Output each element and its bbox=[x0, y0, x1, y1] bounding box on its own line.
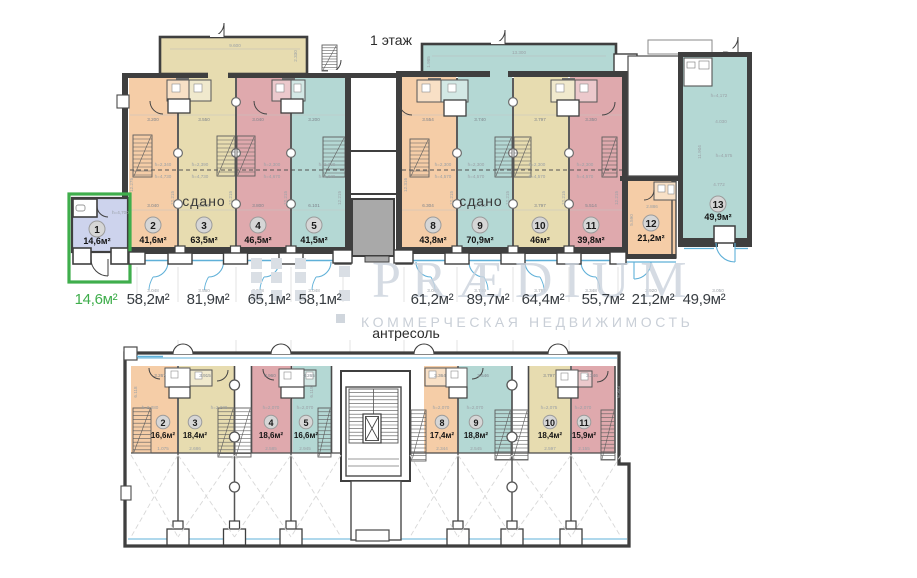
svg-text:3.797: 3.797 bbox=[543, 373, 555, 378]
svg-text:3.364: 3.364 bbox=[434, 373, 446, 378]
svg-text:58,2м²: 58,2м² bbox=[127, 291, 170, 308]
svg-text:18,4м²: 18,4м² bbox=[538, 431, 562, 440]
svg-text:12.215: 12.215 bbox=[283, 191, 288, 205]
svg-text:6.303: 6.303 bbox=[616, 386, 621, 398]
svg-text:46,5м²: 46,5м² bbox=[244, 235, 271, 245]
svg-text:антресоль: антресоль bbox=[372, 325, 440, 341]
svg-text:3.265: 3.265 bbox=[303, 373, 315, 378]
svg-text:12.316: 12.316 bbox=[403, 178, 408, 192]
svg-text:3.350: 3.350 bbox=[585, 117, 597, 122]
svg-text:1.985: 1.985 bbox=[426, 56, 431, 68]
svg-text:15,9м²: 15,9м² bbox=[572, 431, 596, 440]
svg-text:h=2,070: h=2,070 bbox=[263, 405, 280, 410]
svg-text:18,4м²: 18,4м² bbox=[183, 431, 207, 440]
svg-text:21,2м²: 21,2м² bbox=[637, 233, 664, 243]
svg-text:h=2,070: h=2,070 bbox=[433, 405, 450, 410]
svg-text:h=4,730: h=4,730 bbox=[192, 174, 209, 179]
svg-text:16,6м²: 16,6м² bbox=[294, 431, 318, 440]
svg-text:h=4,670: h=4,670 bbox=[319, 174, 336, 179]
svg-text:10: 10 bbox=[534, 221, 546, 232]
svg-text:3.800: 3.800 bbox=[252, 203, 264, 208]
svg-text:h=2,070: h=2,070 bbox=[575, 405, 592, 410]
svg-text:h=2,070: h=2,070 bbox=[297, 405, 314, 410]
svg-text:11.904: 11.904 bbox=[697, 145, 702, 159]
svg-text:81,9м²: 81,9м² bbox=[187, 291, 230, 308]
svg-text:h=2,300: h=2,300 bbox=[468, 162, 485, 167]
svg-text:h=2,300: h=2,300 bbox=[319, 162, 336, 167]
svg-text:h=2,070: h=2,070 bbox=[467, 405, 484, 410]
svg-text:21,2м²: 21,2м² bbox=[632, 291, 675, 308]
svg-text:h=4,570: h=4,570 bbox=[529, 174, 546, 179]
svg-text:6.101: 6.101 bbox=[308, 203, 320, 208]
svg-text:3.040: 3.040 bbox=[252, 117, 264, 122]
svg-text:4: 4 bbox=[255, 221, 261, 232]
svg-text:12.215: 12.215 bbox=[337, 191, 342, 205]
svg-text:10: 10 bbox=[545, 418, 555, 428]
svg-text:12: 12 bbox=[645, 219, 657, 230]
svg-text:14,6м²: 14,6м² bbox=[83, 236, 110, 246]
svg-text:h=2,300: h=2,300 bbox=[577, 162, 594, 167]
svg-text:2.585: 2.585 bbox=[265, 446, 277, 451]
svg-text:3.200: 3.200 bbox=[308, 117, 320, 122]
svg-text:3.797: 3.797 bbox=[534, 117, 546, 122]
svg-text:8: 8 bbox=[439, 418, 444, 428]
svg-text:сдано: сдано bbox=[182, 193, 225, 209]
svg-text:5: 5 bbox=[303, 418, 308, 428]
svg-text:49,9м²: 49,9м² bbox=[704, 212, 731, 222]
svg-text:h=4,575: h=4,575 bbox=[716, 153, 733, 158]
svg-text:h=2,340: h=2,340 bbox=[155, 162, 172, 167]
svg-text:9: 9 bbox=[473, 418, 478, 428]
svg-text:2.945: 2.945 bbox=[299, 446, 311, 451]
svg-text:12.215: 12.215 bbox=[449, 191, 454, 205]
svg-text:сдано: сдано bbox=[459, 193, 502, 209]
svg-text:12.215: 12.215 bbox=[561, 191, 566, 205]
svg-text:13: 13 bbox=[712, 200, 724, 211]
svg-text:2.686: 2.686 bbox=[189, 446, 201, 451]
svg-text:55,7м²: 55,7м² bbox=[582, 291, 625, 308]
svg-text:8: 8 bbox=[430, 221, 436, 232]
svg-text:13.300: 13.300 bbox=[512, 50, 526, 55]
svg-text:3.797: 3.797 bbox=[534, 203, 546, 208]
svg-text:41,5м²: 41,5м² bbox=[300, 235, 327, 245]
svg-text:h=2,300: h=2,300 bbox=[264, 162, 281, 167]
svg-text:9: 9 bbox=[477, 221, 483, 232]
svg-text:3: 3 bbox=[192, 418, 197, 428]
svg-text:h=2,270: h=2,270 bbox=[211, 405, 228, 410]
svg-text:43,8м²: 43,8м² bbox=[419, 235, 446, 245]
svg-text:3.960: 3.960 bbox=[264, 373, 276, 378]
svg-text:2.597: 2.597 bbox=[544, 446, 556, 451]
svg-text:4: 4 bbox=[268, 418, 273, 428]
svg-text:2.545: 2.545 bbox=[470, 446, 482, 451]
svg-text:h=4,570: h=4,570 bbox=[468, 174, 485, 179]
svg-text:16,6м²: 16,6м² bbox=[151, 431, 175, 440]
svg-text:3.915: 3.915 bbox=[199, 373, 211, 378]
svg-text:12.275: 12.275 bbox=[129, 178, 134, 192]
svg-text:6.304: 6.304 bbox=[422, 203, 434, 208]
svg-text:41,6м²: 41,6м² bbox=[139, 235, 166, 245]
svg-text:3.346: 3.346 bbox=[586, 373, 598, 378]
svg-text:11: 11 bbox=[579, 418, 589, 428]
svg-text:h=2,075: h=2,075 bbox=[541, 405, 558, 410]
svg-text:2.886: 2.886 bbox=[646, 204, 658, 209]
svg-text:h=4,172: h=4,172 bbox=[711, 93, 728, 98]
svg-text:12.215: 12.215 bbox=[170, 191, 175, 205]
svg-text:h=2,300: h=2,300 bbox=[529, 162, 546, 167]
svg-text:3.554: 3.554 bbox=[422, 117, 434, 122]
svg-text:h=4,570: h=4,570 bbox=[577, 174, 594, 179]
svg-text:49,9м²: 49,9м² bbox=[683, 291, 726, 308]
svg-text:1: 1 bbox=[94, 225, 100, 236]
svg-text:64,4м²: 64,4м² bbox=[522, 291, 565, 308]
svg-text:2.155: 2.155 bbox=[578, 446, 590, 451]
svg-text:6.119: 6.119 bbox=[309, 386, 314, 398]
svg-text:12.215: 12.215 bbox=[614, 191, 619, 205]
svg-text:h=2,390: h=2,390 bbox=[192, 162, 209, 167]
svg-text:3.267: 3.267 bbox=[154, 373, 166, 378]
svg-text:3.546: 3.546 bbox=[477, 373, 489, 378]
svg-text:46м²: 46м² bbox=[530, 235, 550, 245]
svg-text:h=4,670: h=4,670 bbox=[264, 174, 281, 179]
svg-text:3.550: 3.550 bbox=[198, 117, 210, 122]
svg-text:5.590: 5.590 bbox=[629, 214, 634, 226]
svg-text:89,7м²: 89,7м² bbox=[467, 291, 510, 308]
svg-text:2.330: 2.330 bbox=[293, 50, 298, 62]
svg-text:11: 11 bbox=[586, 221, 597, 232]
svg-text:18,8м²: 18,8м² bbox=[464, 431, 488, 440]
svg-text:h=2,280: h=2,280 bbox=[142, 405, 159, 410]
svg-text:h=2,300: h=2,300 bbox=[435, 162, 452, 167]
svg-text:3: 3 bbox=[201, 221, 207, 232]
svg-text:61,2м²: 61,2м² bbox=[411, 291, 454, 308]
svg-text:63,5м²: 63,5м² bbox=[190, 235, 217, 245]
svg-text:1 этаж: 1 этаж bbox=[370, 32, 413, 48]
svg-text:h=4,730: h=4,730 bbox=[155, 174, 172, 179]
svg-text:12.215: 12.215 bbox=[228, 191, 233, 205]
svg-text:9.600: 9.600 bbox=[229, 43, 241, 48]
svg-text:2.344: 2.344 bbox=[436, 446, 448, 451]
svg-text:39,8м²: 39,8м² bbox=[577, 235, 604, 245]
svg-text:h=4,570: h=4,570 bbox=[435, 174, 452, 179]
svg-text:58,1м²: 58,1м² bbox=[299, 291, 342, 308]
svg-text:5: 5 bbox=[311, 221, 317, 232]
svg-text:17,4м²: 17,4м² bbox=[430, 431, 454, 440]
svg-text:12.215: 12.215 bbox=[505, 191, 510, 205]
svg-text:14,6м²: 14,6м² bbox=[75, 291, 118, 308]
svg-text:1.075: 1.075 bbox=[157, 446, 169, 451]
svg-text:2: 2 bbox=[160, 418, 165, 428]
svg-text:4.772: 4.772 bbox=[713, 182, 725, 187]
svg-text:70,9м²: 70,9м² bbox=[466, 235, 493, 245]
svg-text:3.200: 3.200 bbox=[147, 117, 159, 122]
svg-text:18,6м²: 18,6м² bbox=[259, 431, 283, 440]
svg-text:4.030: 4.030 bbox=[715, 119, 727, 124]
svg-text:3.740: 3.740 bbox=[474, 117, 486, 122]
svg-text:65,1м²: 65,1м² bbox=[248, 291, 291, 308]
svg-text:h=4,700: h=4,700 bbox=[112, 210, 129, 215]
svg-text:3.040: 3.040 bbox=[147, 203, 159, 208]
svg-text:2: 2 bbox=[150, 221, 156, 232]
svg-text:6.118: 6.118 bbox=[133, 386, 138, 398]
svg-text:5.514: 5.514 bbox=[585, 203, 597, 208]
